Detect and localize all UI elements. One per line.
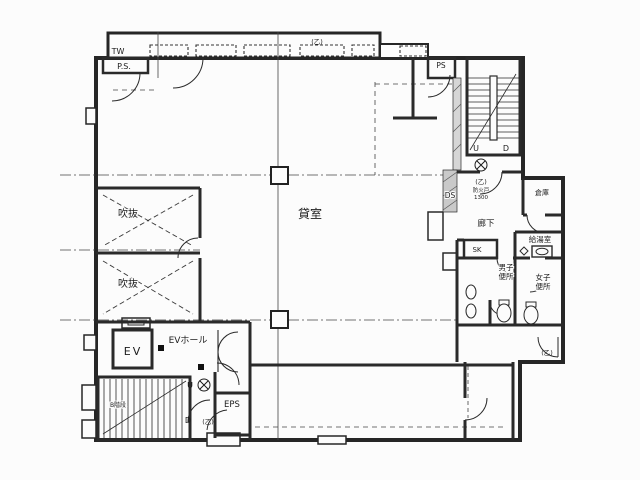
label-stair-name: B階段 (110, 401, 126, 409)
filled-square-symbol (158, 345, 204, 370)
label-elevator-hall: EVホール (169, 335, 208, 346)
toilet (524, 306, 538, 324)
label-otsu-top: (乙) (311, 38, 323, 46)
label-otsu-southwest: (乙) (202, 418, 214, 426)
urinal (466, 285, 476, 299)
symbols (158, 159, 487, 391)
toilet (497, 304, 511, 322)
label-ps-northwest: P.S. (117, 62, 131, 71)
urinal (466, 304, 476, 318)
label-elevator: EV (124, 345, 142, 358)
label-womens-toilet-1: 女子 (536, 272, 551, 282)
label-stair-up-ne: U (473, 144, 479, 153)
diamond-symbol (520, 247, 528, 255)
stairs-northeast (467, 58, 520, 155)
floor-plan: TW P.S. (乙) PS U D (乙) 防火戸 1300 DS 倉庫 廊下… (0, 0, 640, 480)
label-duct-space: DS (445, 191, 456, 200)
label-otsu-southeast: (乙) (541, 349, 553, 357)
label-fire-door-note: 防火戸 (473, 186, 490, 194)
label-void-upper: 吹抜 (118, 207, 138, 220)
label-mens-toilet-2: 便所 (499, 271, 514, 281)
label-otsu-ne: (乙) (475, 178, 487, 186)
label-womens-toilet-2: 便所 (536, 281, 551, 291)
label-rental-room: 貸室 (298, 206, 322, 221)
label-stair-down-sw: D (185, 416, 191, 425)
floor-plan-drawing: TW P.S. (乙) PS U D (乙) 防火戸 1300 DS 倉庫 廊下… (0, 0, 640, 480)
columns (271, 167, 288, 328)
label-stair-up-sw: U (187, 381, 193, 390)
label-storage-room: 倉庫 (535, 188, 549, 197)
label-eps: EPS (224, 400, 240, 410)
label-kitchenette: 給湯室 (529, 234, 552, 244)
label-ps-northeast: PS (436, 61, 446, 70)
label-fire-door-width: 1300 (474, 195, 488, 201)
label-stair-down-ne: D (503, 144, 509, 153)
label-slop-sink: SK (472, 246, 481, 254)
label-tw: TW (111, 47, 125, 56)
grid-lines (60, 32, 505, 440)
label-void-lower: 吹抜 (118, 277, 138, 290)
label-corridor: 廊下 (477, 218, 495, 229)
label-mens-toilet-1: 男子 (499, 263, 514, 272)
